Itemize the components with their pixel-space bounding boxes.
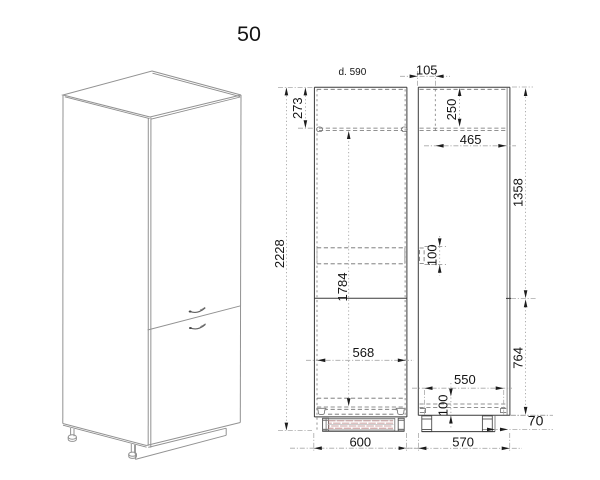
svg-text:764: 764 bbox=[511, 347, 526, 369]
svg-text:100: 100 bbox=[425, 244, 440, 266]
svg-text:70: 70 bbox=[528, 412, 544, 428]
svg-text:550: 550 bbox=[454, 372, 476, 387]
svg-text:105: 105 bbox=[416, 63, 438, 78]
svg-text:100: 100 bbox=[435, 395, 450, 417]
svg-text:570: 570 bbox=[452, 435, 474, 450]
svg-text:600: 600 bbox=[349, 435, 371, 450]
svg-text:50: 50 bbox=[237, 22, 261, 46]
svg-text:1784: 1784 bbox=[335, 273, 350, 302]
svg-text:1358: 1358 bbox=[511, 178, 526, 207]
svg-text:568: 568 bbox=[353, 345, 375, 360]
svg-text:250: 250 bbox=[444, 99, 459, 121]
svg-text:273: 273 bbox=[290, 97, 305, 119]
svg-text:d. 590: d. 590 bbox=[338, 67, 366, 78]
svg-text:2228: 2228 bbox=[272, 239, 287, 268]
svg-text:465: 465 bbox=[460, 132, 482, 147]
